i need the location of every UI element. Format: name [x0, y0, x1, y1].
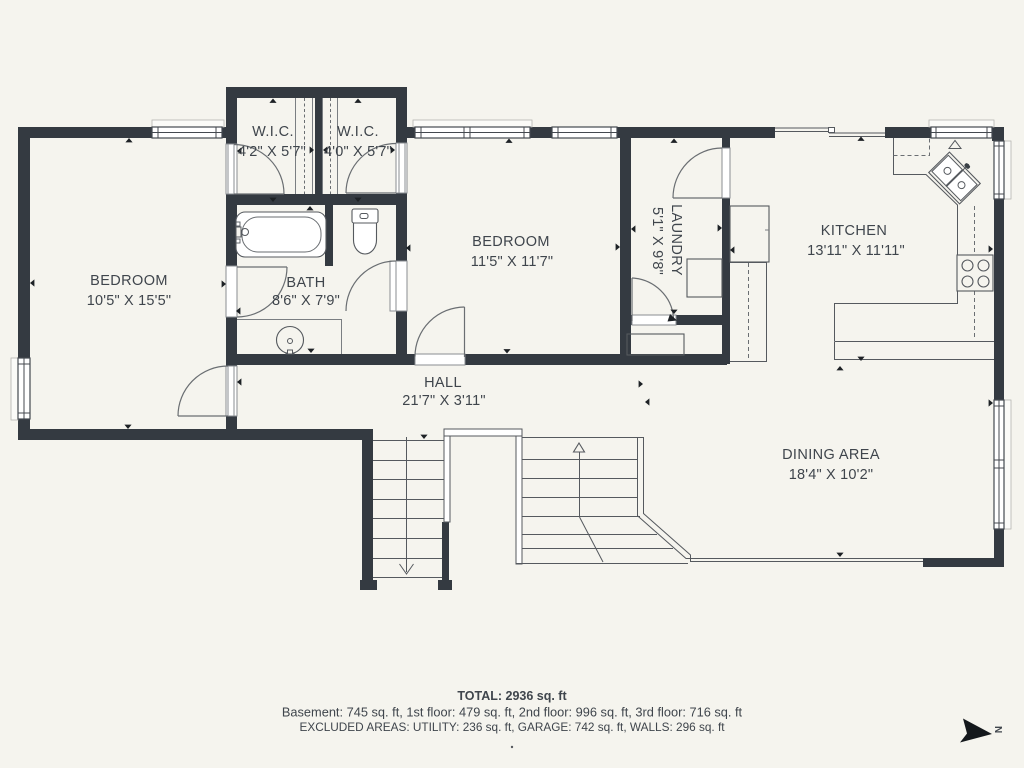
svg-text:HALL: HALL [424, 375, 462, 391]
svg-text:21'7" X 3'11": 21'7" X 3'11" [402, 393, 485, 409]
svg-text:10'5" X 15'5": 10'5" X 15'5" [87, 293, 172, 309]
svg-text:W.I.C.: W.I.C. [337, 124, 379, 140]
svg-text:BEDROOM: BEDROOM [472, 234, 550, 250]
svg-text:TOTAL: 2936 sq. ft: TOTAL: 2936 sq. ft [457, 689, 567, 703]
svg-text:LAUNDRY: LAUNDRY [668, 204, 684, 276]
svg-text:13'11" X 11'11": 13'11" X 11'11" [807, 243, 905, 259]
svg-text:4'2" X 5'7": 4'2" X 5'7" [238, 144, 306, 160]
svg-text:DINING AREA: DINING AREA [782, 447, 880, 463]
svg-text:W.I.C.: W.I.C. [252, 124, 294, 140]
svg-text:Basement: 745 sq. ft, 1st floo: Basement: 745 sq. ft, 1st floor: 479 sq.… [282, 705, 743, 720]
svg-text:8'6" X 7'9": 8'6" X 7'9" [272, 293, 340, 309]
svg-text:N: N [992, 726, 1003, 733]
svg-text:11'5" X 11'7": 11'5" X 11'7" [471, 254, 553, 270]
svg-text:EXCLUDED AREAS: UTILITY: 236 s: EXCLUDED AREAS: UTILITY: 236 sq. ft, GAR… [299, 720, 725, 734]
svg-text:BEDROOM: BEDROOM [90, 273, 168, 289]
svg-text:BATH: BATH [286, 275, 325, 291]
svg-text:KITCHEN: KITCHEN [821, 223, 887, 239]
svg-text:18'4" X 10'2": 18'4" X 10'2" [789, 467, 874, 483]
svg-text:5'1" X 9'8": 5'1" X 9'8" [649, 207, 665, 275]
svg-text:4'0" X 5'7": 4'0" X 5'7" [324, 144, 392, 160]
